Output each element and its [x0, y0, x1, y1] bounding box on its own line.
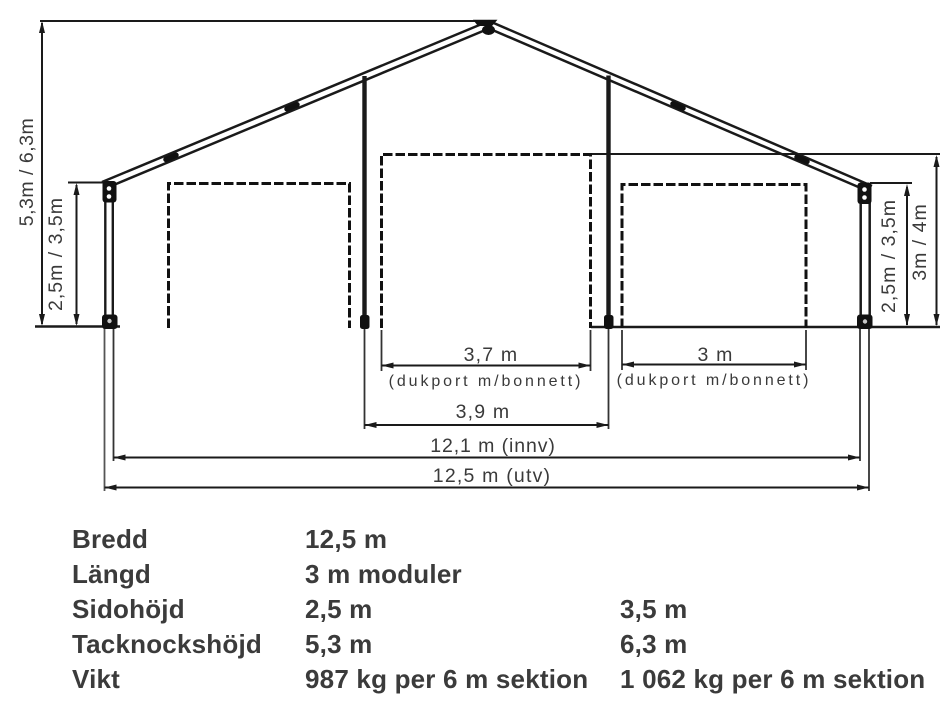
svg-text:2,5m / 3,5m: 2,5m / 3,5m	[45, 197, 67, 311]
svg-text:(dukport m/bonnett): (dukport m/bonnett)	[617, 372, 812, 389]
svg-text:3 m: 3 m	[697, 344, 733, 366]
svg-text:3,9 m: 3,9 m	[456, 401, 511, 423]
svg-text:12,5 m (utv): 12,5 m (utv)	[433, 465, 551, 487]
svg-text:2,5m / 3,5m: 2,5m / 3,5m	[878, 199, 900, 313]
svg-text:(dukport m/bonnett): (dukport m/bonnett)	[389, 373, 584, 390]
svg-text:3,7 m: 3,7 m	[464, 344, 519, 366]
svg-text:3m / 4m: 3m / 4m	[909, 203, 931, 280]
svg-text:12,1 m (innv): 12,1 m (innv)	[430, 435, 556, 457]
svg-text:5,3m / 6,3m: 5,3m / 6,3m	[16, 118, 38, 226]
